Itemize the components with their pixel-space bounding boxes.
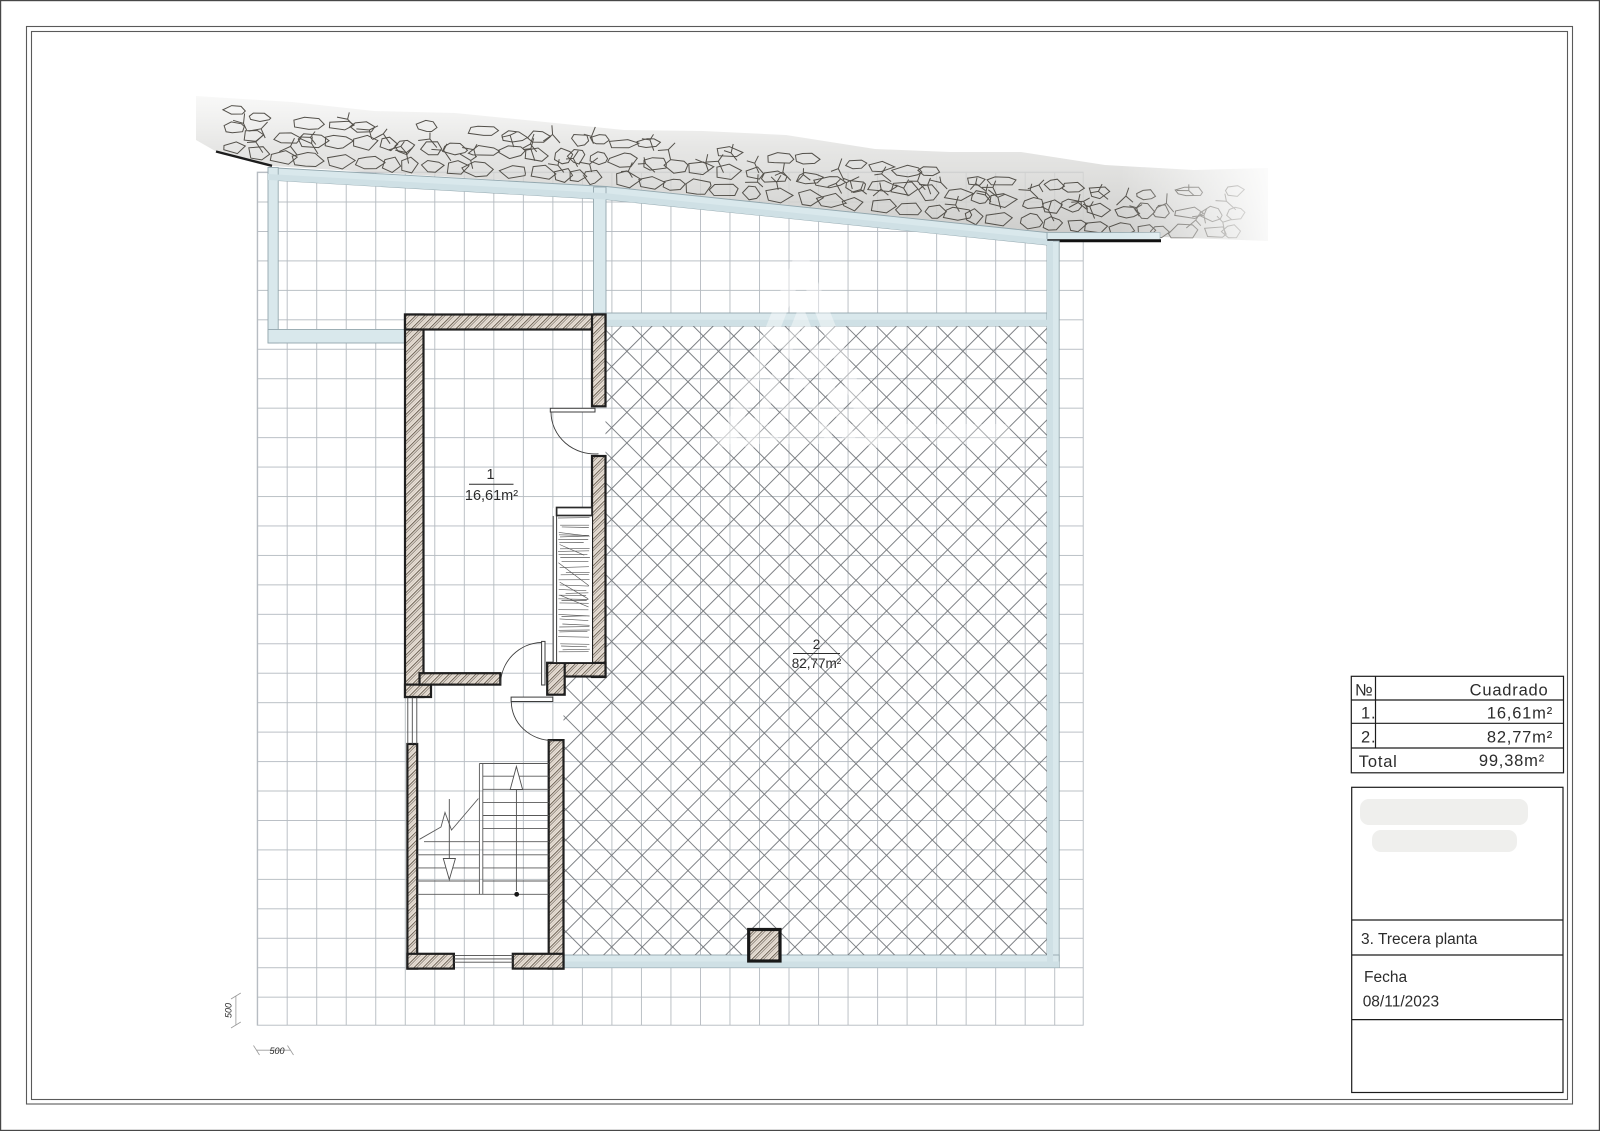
svg-text:Total: Total	[1359, 753, 1398, 771]
svg-text:2: 2	[813, 637, 821, 652]
svg-text:99,38m²: 99,38m²	[1479, 752, 1545, 770]
svg-text:Cuadrado: Cuadrado	[1470, 681, 1549, 699]
svg-text:1: 1	[486, 467, 494, 483]
svg-text:82,77m²: 82,77m²	[1487, 729, 1553, 747]
svg-text:500: 500	[269, 1046, 284, 1056]
svg-text:3. Trecera planta: 3. Trecera planta	[1361, 931, 1478, 948]
svg-text:82,77m²: 82,77m²	[792, 656, 842, 671]
svg-text:08/11/2023: 08/11/2023	[1363, 994, 1439, 1011]
svg-text:2.: 2.	[1361, 729, 1376, 747]
svg-text:№: №	[1355, 681, 1374, 699]
svg-text:16,61m²: 16,61m²	[465, 488, 518, 504]
svg-text:1.: 1.	[1361, 705, 1376, 723]
svg-text:16,61m²: 16,61m²	[1487, 705, 1553, 723]
svg-text:500: 500	[224, 1003, 234, 1018]
svg-text:Fecha: Fecha	[1364, 969, 1407, 986]
